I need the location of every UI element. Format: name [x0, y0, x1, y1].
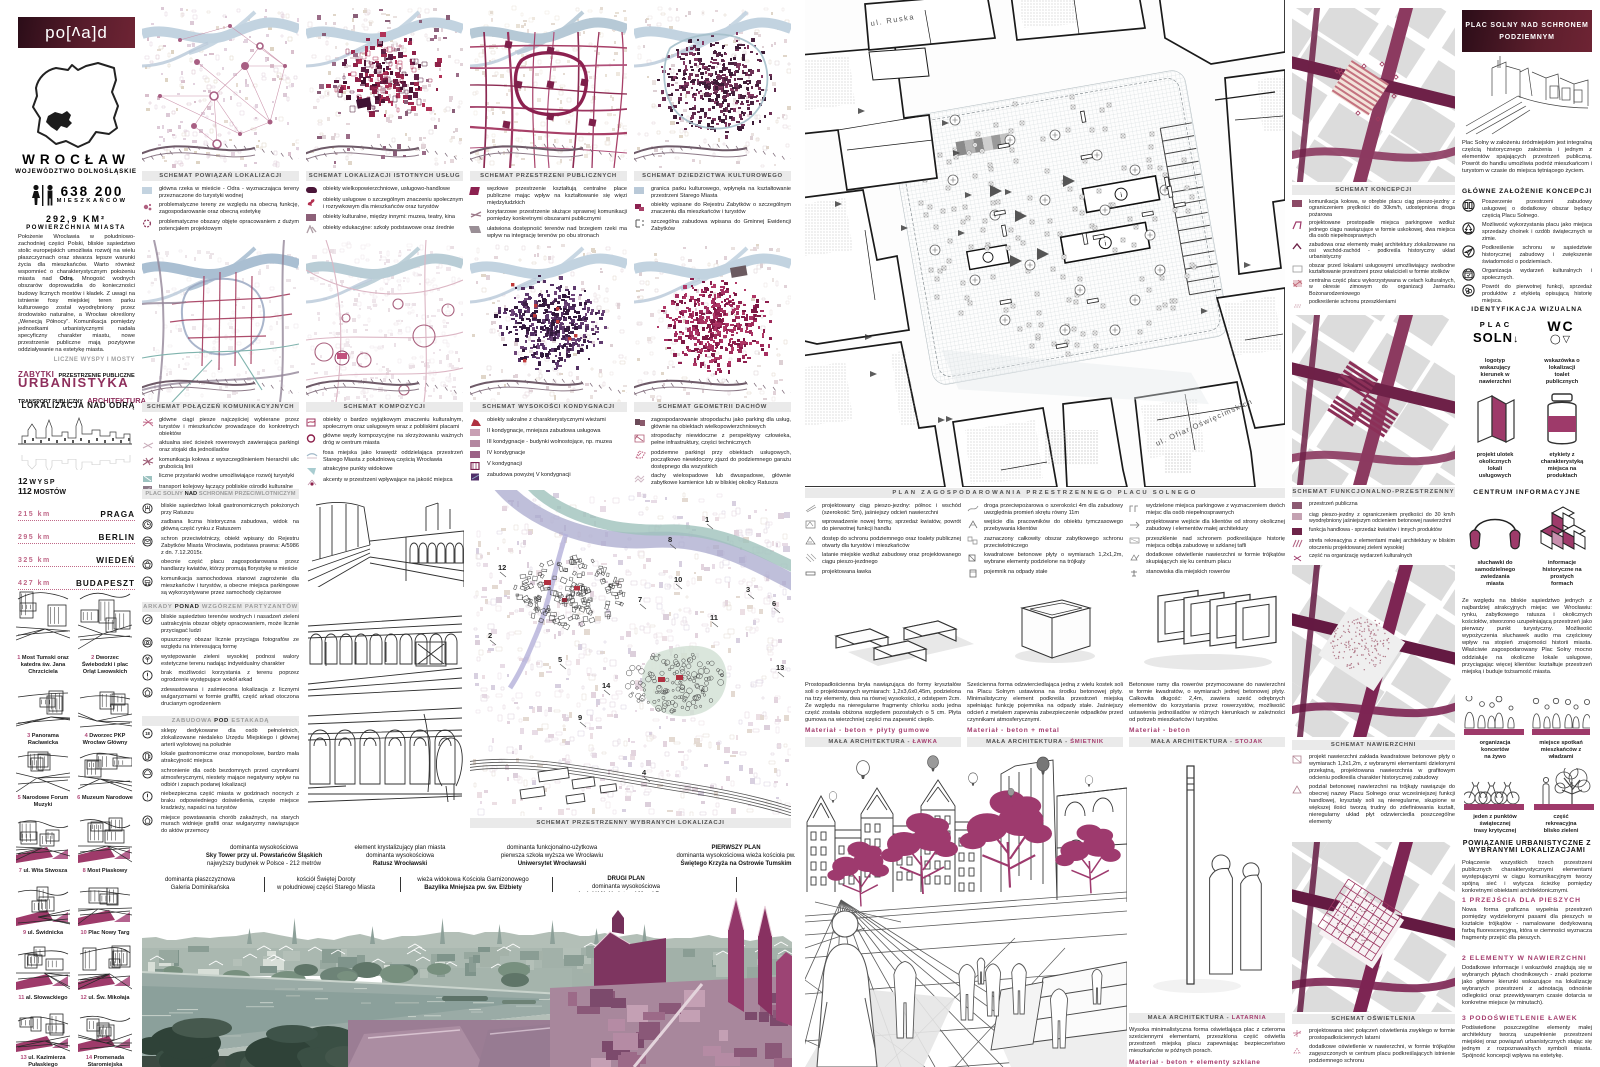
svg-text:12: 12	[498, 563, 506, 572]
svg-text:11: 11	[710, 613, 718, 622]
svg-text:8: 8	[668, 535, 672, 544]
svg-text:6: 6	[772, 599, 776, 608]
svg-text:5: 5	[558, 655, 562, 664]
svg-text:13: 13	[776, 663, 784, 672]
svg-text:10: 10	[674, 575, 682, 584]
svg-text:9: 9	[578, 713, 582, 722]
svg-text:14: 14	[602, 681, 611, 690]
svg-text:2: 2	[488, 631, 492, 640]
svg-text:3: 3	[746, 585, 750, 594]
svg-text:18: 18	[145, 731, 150, 736]
svg-text:1: 1	[705, 515, 709, 524]
svg-text:7: 7	[638, 595, 642, 604]
